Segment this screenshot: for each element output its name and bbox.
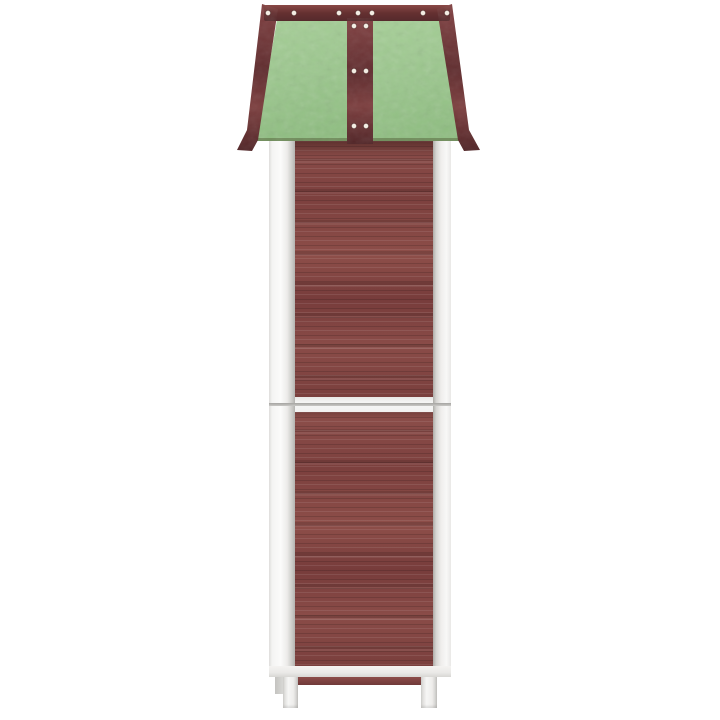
screw-icon [444, 10, 449, 15]
screw-icon [291, 10, 296, 15]
frame-post-left [269, 141, 295, 677]
screw-icon [363, 23, 368, 28]
screw-icon [363, 68, 368, 73]
frame-post-right [433, 141, 451, 677]
wall-lower-panel [295, 412, 433, 666]
screw-icon [351, 68, 356, 73]
roof [0, 0, 720, 165]
screw-icon [420, 10, 425, 15]
wall-upper-panel [295, 141, 433, 397]
roof-batten-center-texture [347, 18, 373, 144]
screw-icon [369, 10, 374, 15]
screw-icon [351, 23, 356, 28]
bottom-back-rail [293, 677, 429, 685]
screw-icon [363, 123, 368, 128]
shed-product-image [0, 0, 720, 720]
module-seam [269, 403, 451, 406]
bottom-rail [269, 666, 451, 677]
screw-icon [336, 10, 341, 15]
screw-icon [351, 123, 356, 128]
leg-front-right [421, 677, 437, 708]
leg-front-left [283, 677, 298, 708]
screw-icon [355, 10, 360, 15]
screw-icon [265, 10, 270, 15]
